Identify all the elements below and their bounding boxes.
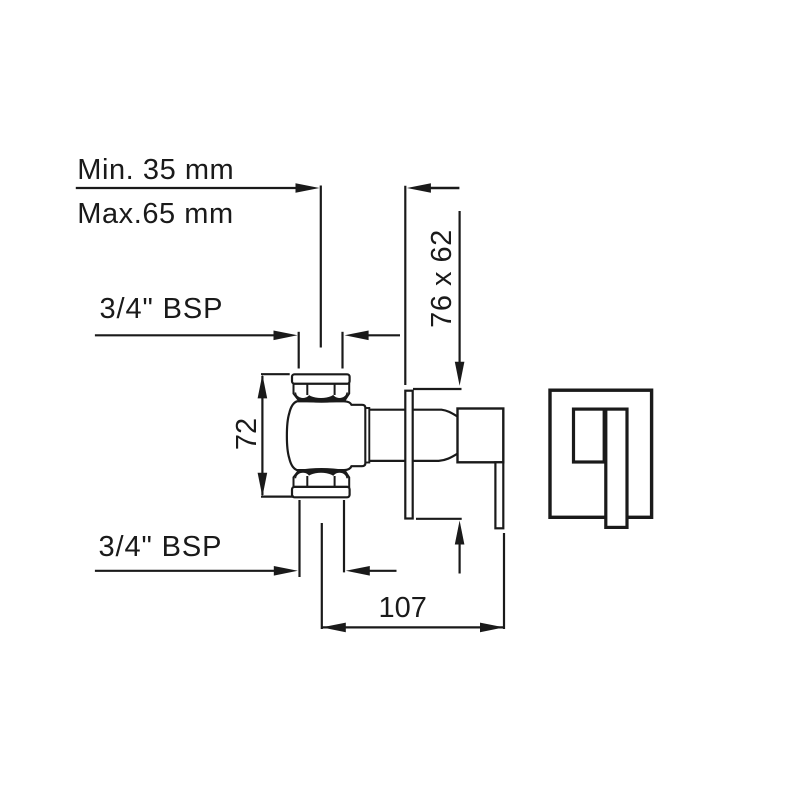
svg-text:72: 72 [231, 418, 263, 450]
svg-text:3/4" BSP: 3/4" BSP [100, 293, 224, 325]
svg-text:Min. 35 mm: Min. 35 mm [77, 154, 234, 186]
svg-text:107: 107 [379, 592, 427, 624]
svg-text:Max.65 mm: Max.65 mm [77, 198, 233, 230]
svg-text:3/4" BSP: 3/4" BSP [99, 531, 223, 563]
svg-text:76 x 62: 76 x 62 [426, 229, 458, 328]
